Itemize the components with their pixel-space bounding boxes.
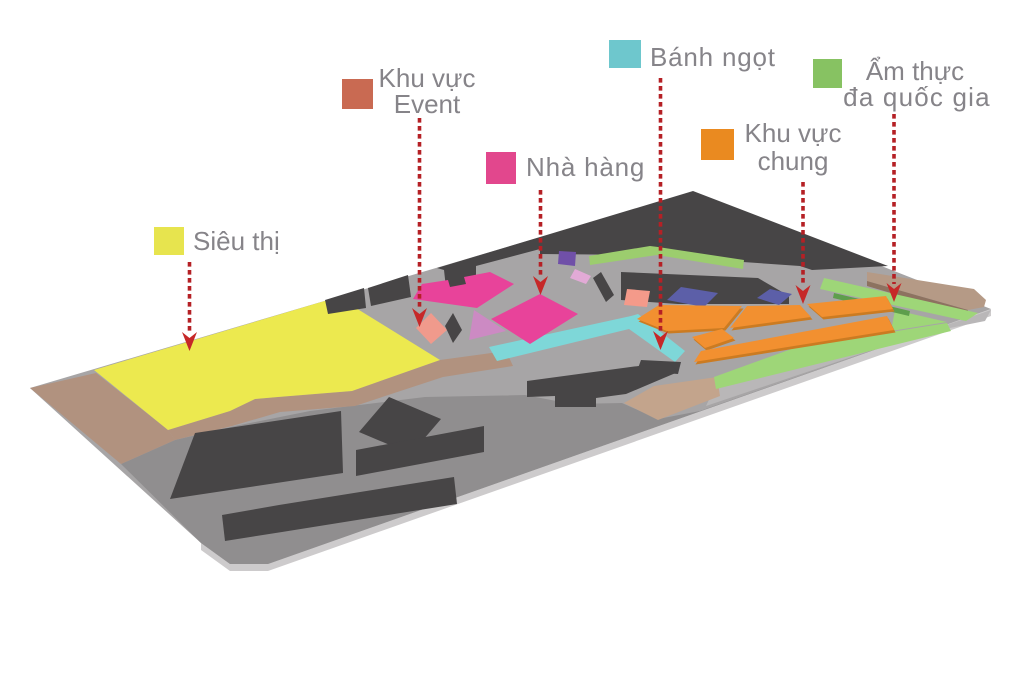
svg-text:đa quốc gia: đa quốc gia: [843, 82, 991, 112]
svg-text:Event: Event: [394, 89, 461, 119]
svg-text:chung: chung: [758, 146, 829, 176]
svg-text:Khu vực: Khu vực: [745, 118, 842, 148]
svg-text:Bánh ngọt: Bánh ngọt: [650, 42, 776, 72]
svg-text:Nhà hàng: Nhà hàng: [526, 152, 645, 182]
svg-text:Siêu thị: Siêu thị: [193, 226, 280, 256]
